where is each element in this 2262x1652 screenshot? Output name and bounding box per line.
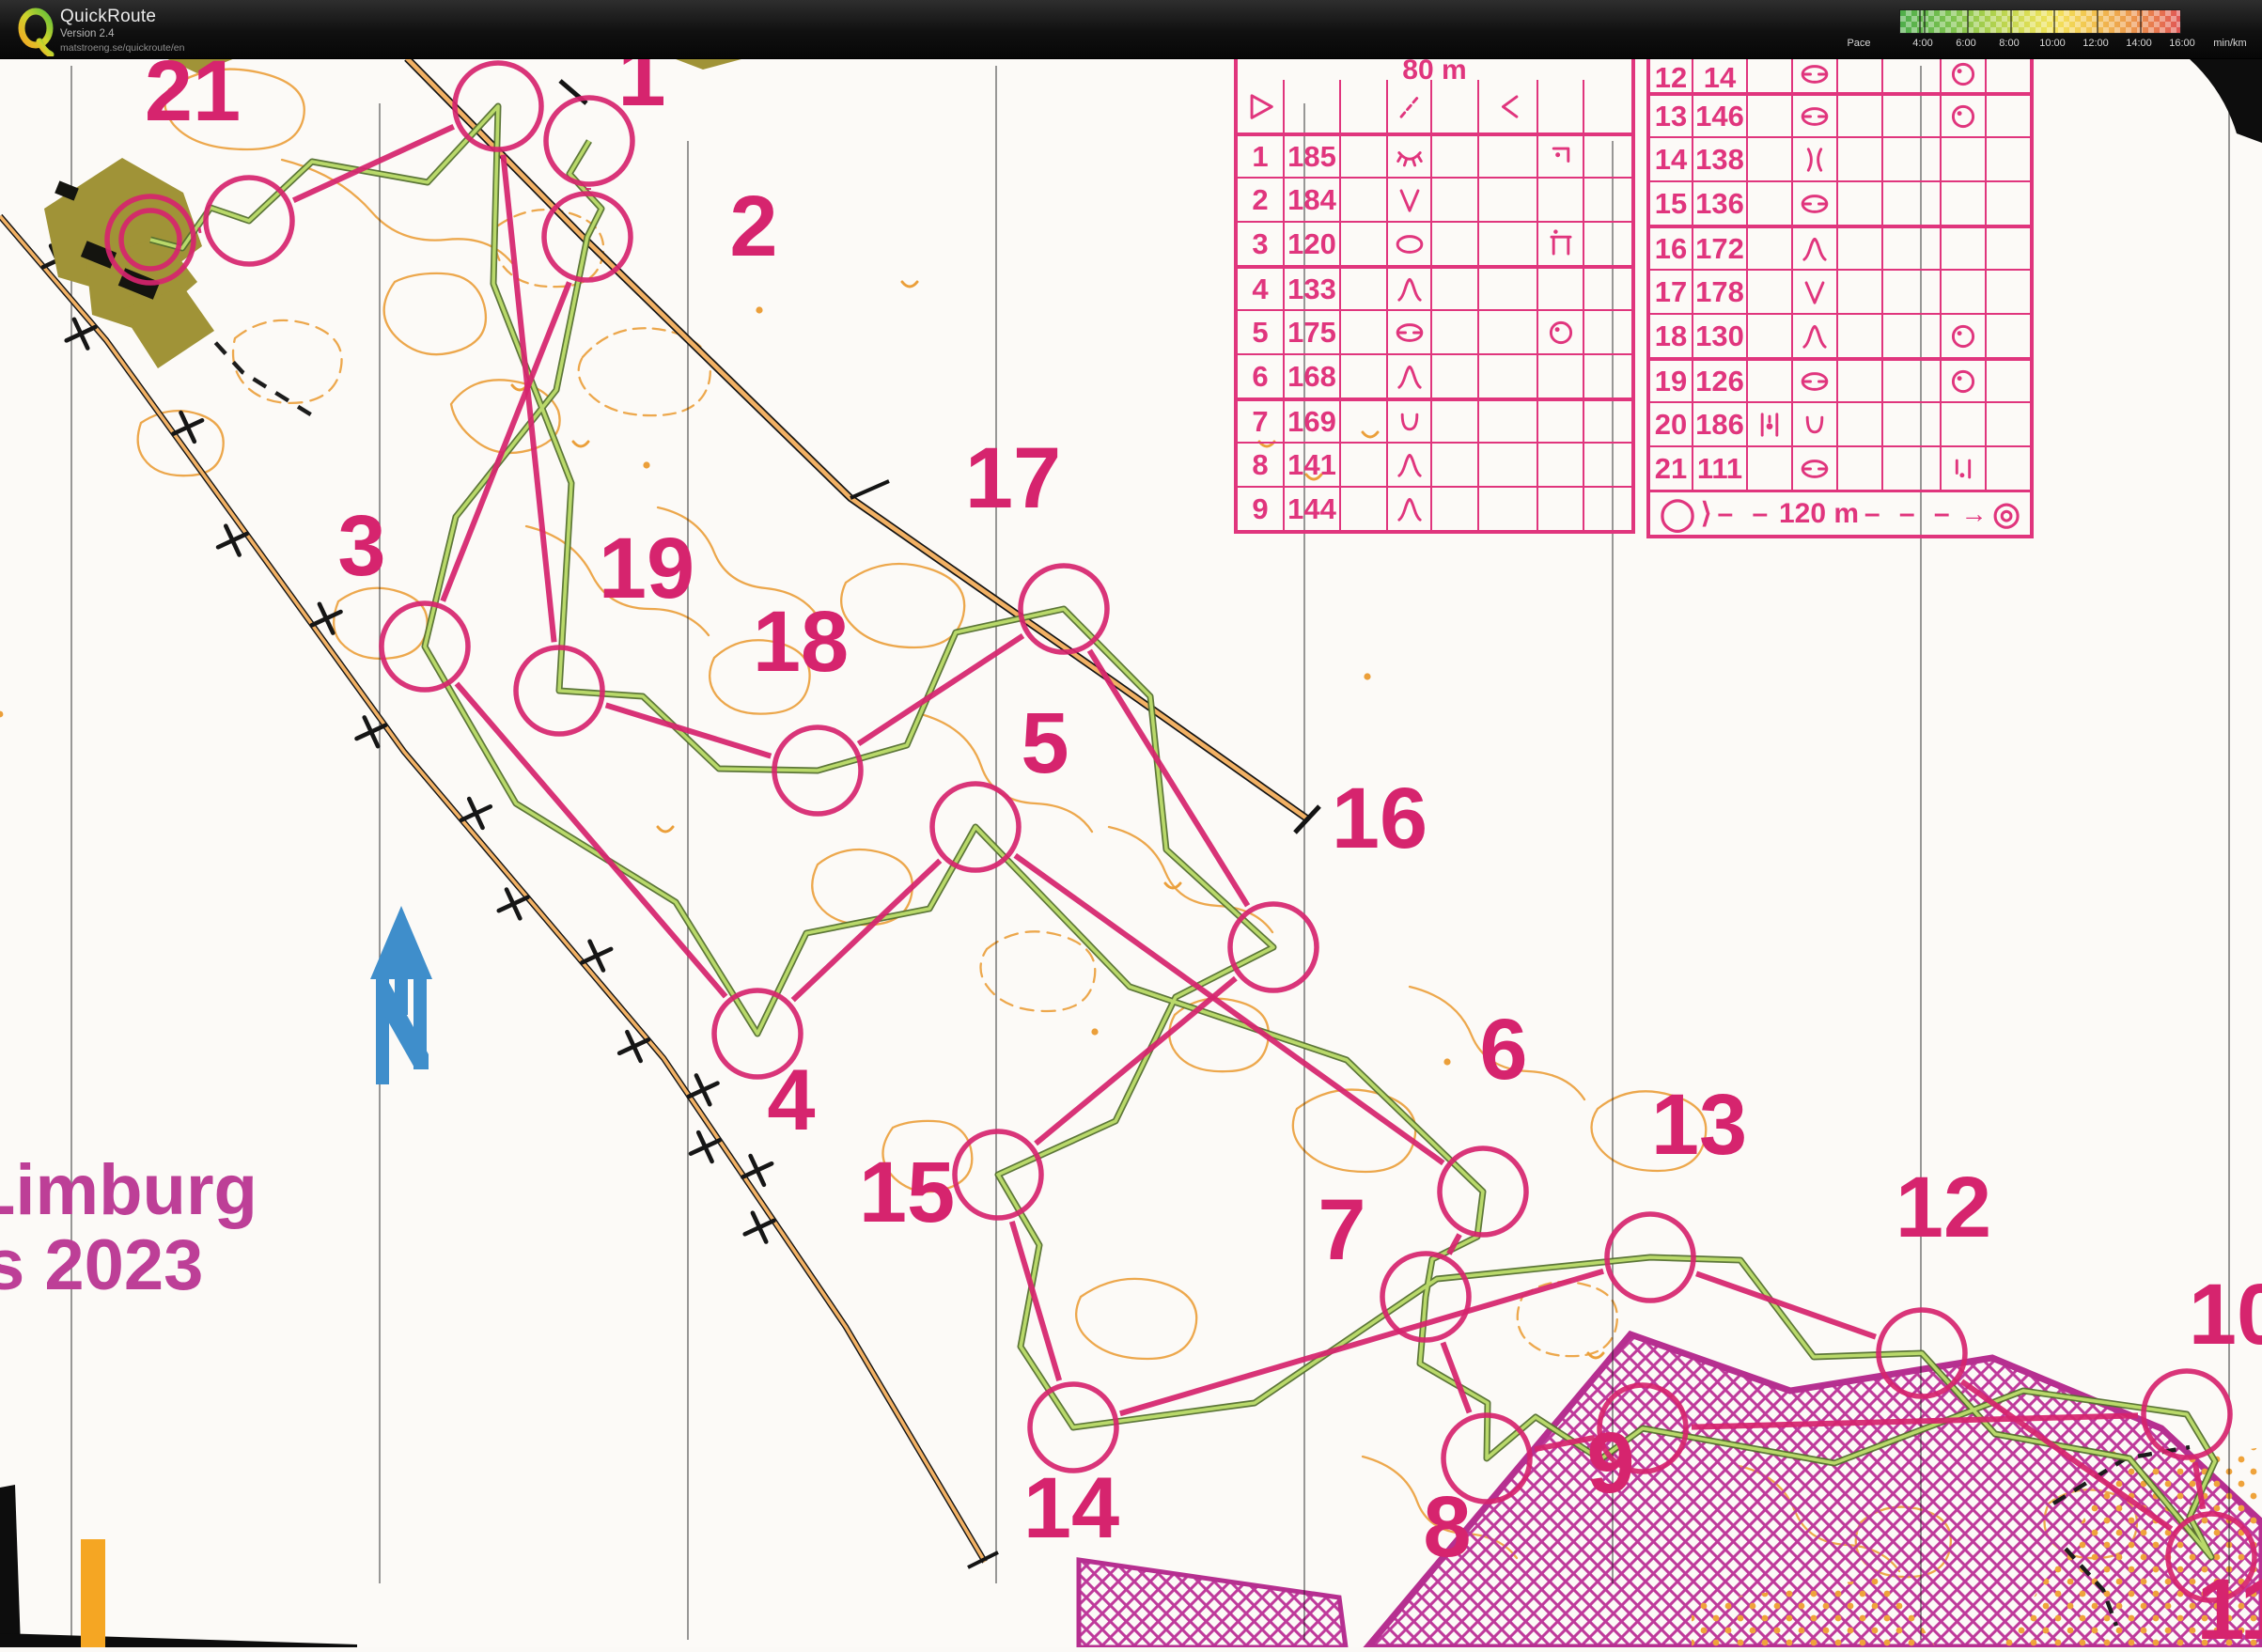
bell-icon [1797, 231, 1833, 267]
v-icon [1797, 274, 1833, 310]
eyelash-icon [1392, 139, 1427, 175]
pi-dot-icon [1543, 226, 1579, 262]
description-row: 15136 [1646, 180, 2034, 225]
control-number: 3 [1252, 227, 1268, 261]
control-code: 111 [1697, 452, 1742, 486]
control-code: 14 [1704, 64, 1736, 92]
control-number: 20 [1655, 408, 1687, 442]
description-row: 20186 [1646, 401, 2034, 445]
description-row: 18130 [1646, 313, 2034, 357]
description-row: 4133 [1234, 265, 1635, 309]
circle-dot-icon [1945, 319, 1981, 354]
course-leg [198, 230, 201, 231]
control-code: 172 [1695, 232, 1744, 266]
circle-dot-icon [1945, 58, 1981, 92]
description-row: 2184 [1234, 177, 1635, 221]
bell-icon [1392, 272, 1427, 307]
u-icon [1392, 404, 1427, 440]
control-code: 146 [1695, 100, 1744, 133]
control-label-7: 7 [1318, 1182, 1365, 1278]
control-code: 141 [1287, 448, 1336, 482]
circle-dot-icon [1543, 315, 1579, 351]
control-code: 169 [1287, 405, 1336, 439]
control-label-18: 18 [753, 594, 849, 690]
slash-dash-icon [1392, 88, 1427, 124]
control-label-14: 14 [1023, 1460, 1119, 1556]
pace-legend-bar [1899, 9, 2181, 34]
bell-icon [1797, 319, 1833, 354]
control-label-4: 4 [767, 1052, 815, 1148]
control-number: 17 [1655, 275, 1687, 309]
finish-circle-icon: ◯ [1660, 495, 1695, 533]
control-label-6: 6 [1479, 1002, 1527, 1098]
v-icon [1392, 182, 1427, 218]
ellipse-bar-icon [1797, 186, 1833, 222]
start-triangle-icon [1242, 88, 1278, 124]
control-code: 186 [1695, 408, 1744, 442]
between-icon [1752, 407, 1787, 443]
control-label-9: 9 [1586, 1415, 1634, 1511]
bell-icon [1392, 447, 1427, 483]
finish-description-row: ◯⟩– –120 m– – –→◎ [1646, 490, 2034, 538]
control-code: 133 [1287, 273, 1336, 306]
control-code: 185 [1287, 140, 1336, 174]
control-code: 168 [1287, 360, 1336, 394]
description-row: 17178 [1646, 269, 2034, 313]
ellipse-bar-icon [1797, 451, 1833, 487]
control-label-8: 8 [1423, 1479, 1471, 1575]
control-label-5: 5 [1021, 695, 1069, 791]
control-number: 14 [1655, 143, 1687, 177]
control-code: 178 [1695, 275, 1744, 309]
map-orange-patch [81, 1539, 105, 1647]
control-number: 6 [1252, 360, 1268, 394]
angle-left-icon [1490, 88, 1526, 124]
circle-dot-icon [1945, 99, 1981, 134]
description-row: 1214 [1646, 58, 2034, 92]
ellipse-bar-icon [1392, 315, 1427, 351]
description-row: 13146 [1646, 92, 2034, 136]
control-number: 19 [1655, 365, 1687, 398]
control-number: 5 [1252, 316, 1268, 350]
control-code: 184 [1287, 183, 1336, 217]
description-row: 21111 [1646, 445, 2034, 490]
u-icon [1797, 407, 1833, 443]
pace-unit: min/km [2208, 38, 2252, 49]
control-number: 4 [1252, 273, 1268, 306]
control-label-12: 12 [1895, 1160, 1991, 1255]
ellipse-bar-icon [1797, 99, 1833, 134]
control-code: 136 [1695, 187, 1744, 221]
control-label-16: 16 [1332, 771, 1427, 866]
control-number: 1 [1252, 140, 1268, 174]
description-row: 1185 [1234, 132, 1635, 177]
control-number: 16 [1655, 232, 1687, 266]
control-number: 8 [1252, 448, 1268, 482]
finish-distance: 120 m [1779, 498, 1859, 530]
control-code: 120 [1287, 227, 1336, 261]
control-description-sheet-left: 80 m118521843120413351756168716981419144 [1234, 52, 1635, 534]
description-row: 14138 [1646, 136, 2034, 180]
dots-pair-icon [1945, 451, 1981, 487]
description-row: 8141 [1234, 442, 1635, 486]
app-title: QuickRoute [60, 7, 156, 27]
ellipse-bar-icon [1797, 58, 1833, 92]
circle-dot-icon [1945, 364, 1981, 399]
description-row: 6168 [1234, 353, 1635, 397]
description-row: 16172 [1646, 225, 2034, 269]
control-label-3: 3 [337, 498, 385, 594]
control-number: 7 [1252, 405, 1268, 439]
app-url[interactable]: matstroeng.se/quickroute/en [60, 42, 185, 54]
control-number: 9 [1252, 492, 1268, 526]
control-code: 175 [1287, 316, 1336, 350]
control-code: 130 [1695, 319, 1744, 353]
control-label-19: 19 [599, 521, 694, 616]
description-row: 19126 [1646, 357, 2034, 401]
control-description-sheet-right: 1214131461413815136161721717818130191262… [1646, 58, 2034, 538]
corner-dot-icon [1543, 139, 1579, 175]
control-number: 2 [1252, 183, 1268, 217]
control-number: 18 [1655, 319, 1687, 353]
map-title-line2: s 2023 [0, 1225, 203, 1305]
ellipse-icon [1392, 226, 1427, 262]
control-label-2: 2 [729, 179, 777, 274]
control-label-17: 17 [965, 430, 1061, 526]
quickroute-logo-icon [15, 6, 58, 56]
control-label-10: 10 [2189, 1267, 2262, 1363]
map-title-line1: Limburg [0, 1150, 257, 1230]
paren-pair-icon [1797, 142, 1833, 178]
control-code: 126 [1695, 365, 1744, 398]
control-number: 21 [1655, 452, 1687, 486]
description-row: 7169 [1234, 397, 1635, 442]
control-label-13: 13 [1651, 1077, 1747, 1173]
control-number: 13 [1655, 100, 1687, 133]
app-version: Version 2.4 [60, 28, 115, 39]
control-code: 144 [1287, 492, 1336, 526]
description-row: 9144 [1234, 486, 1635, 530]
bell-icon [1392, 359, 1427, 395]
bell-icon [1392, 491, 1427, 527]
toolbar: QuickRoute Version 2.4 matstroeng.se/qui… [0, 0, 2262, 59]
description-row [1234, 80, 1635, 132]
description-row: 3120 [1234, 221, 1635, 265]
control-code: 138 [1695, 143, 1744, 177]
control-label-15: 15 [859, 1145, 955, 1240]
quickroute-window: { "toolbar": { "app_name": "QuickRoute",… [0, 0, 2262, 1647]
pace-label: Pace [1837, 38, 1880, 49]
description-row: 5175 [1234, 309, 1635, 353]
double-circle-icon: ◎ [1992, 495, 2020, 533]
ellipse-bar-icon [1797, 364, 1833, 399]
control-number: 15 [1655, 187, 1687, 221]
control-label-11: 11 [2196, 1562, 2262, 1647]
control-number: 12 [1655, 64, 1687, 92]
